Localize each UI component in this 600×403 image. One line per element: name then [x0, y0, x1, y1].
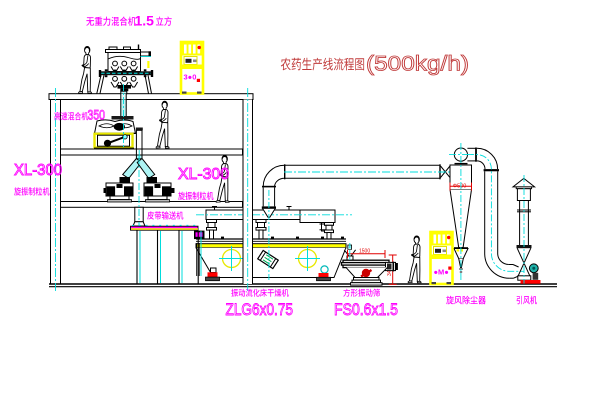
- svg-text:Φ500: Φ500: [453, 184, 467, 190]
- svg-text:(500kg/h): (500kg/h): [366, 52, 469, 75]
- svg-text:XL-300: XL-300: [14, 162, 62, 179]
- svg-text:350: 350: [88, 107, 106, 123]
- svg-text:FS0.6x1.5: FS0.6x1.5: [334, 300, 398, 319]
- svg-text:1500: 1500: [359, 249, 370, 255]
- svg-text:3●0: 3●0: [184, 73, 197, 82]
- svg-text:1.5: 1.5: [135, 13, 155, 29]
- svg-text:XL-300: XL-300: [178, 166, 229, 183]
- svg-text:ZLG6x0.75: ZLG6x0.75: [226, 300, 294, 319]
- svg-text:●M●: ●M●: [434, 268, 449, 277]
